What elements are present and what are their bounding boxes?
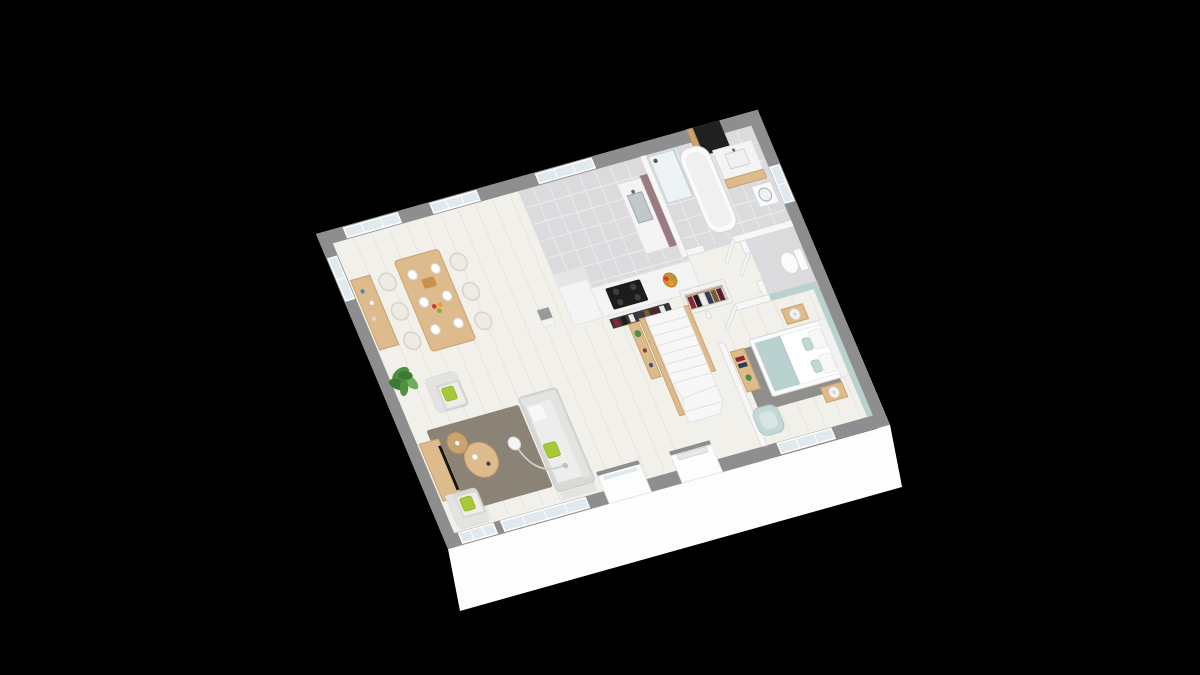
floorplan-canvas (0, 0, 1200, 675)
floorplan-svg (0, 0, 1200, 675)
